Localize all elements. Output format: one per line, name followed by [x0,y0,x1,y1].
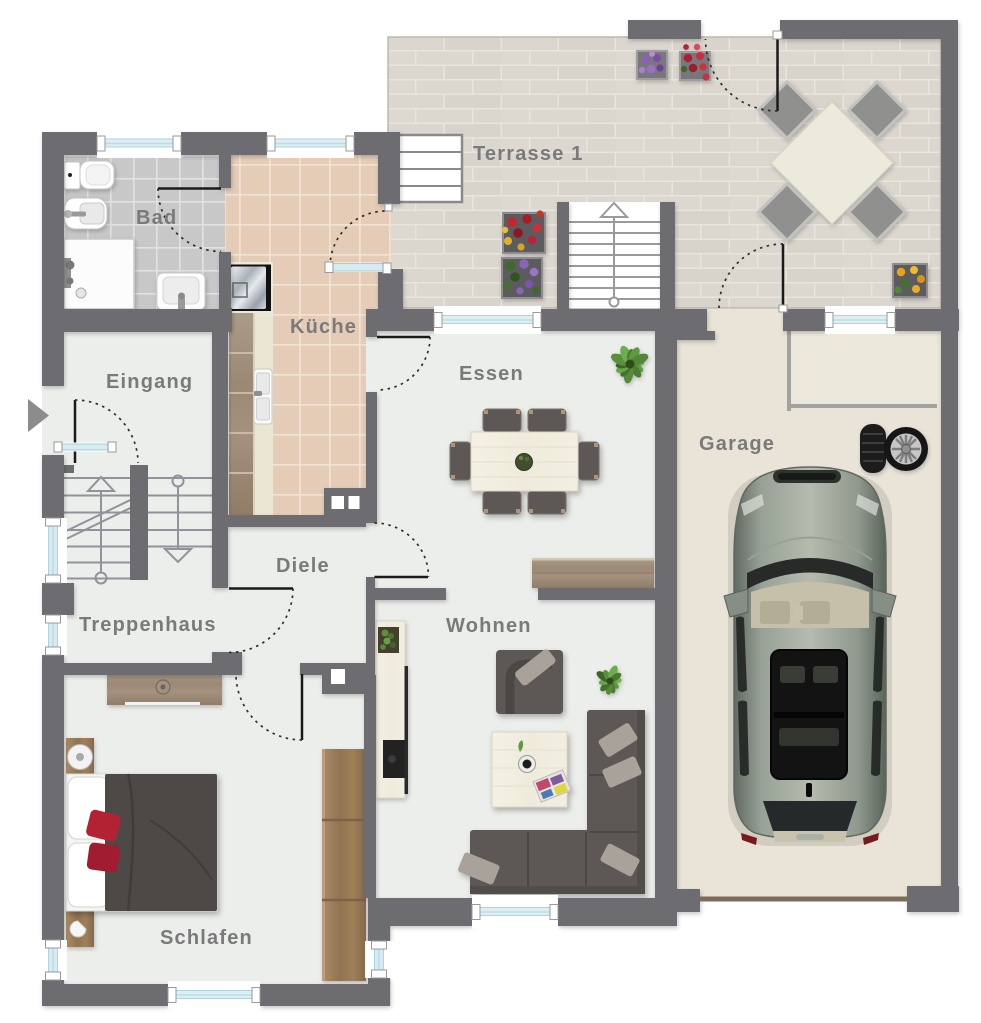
svg-text:Wohnen: Wohnen [446,615,532,637]
svg-text:Garage: Garage [699,433,775,455]
svg-text:Küche: Küche [290,316,357,338]
svg-text:Eingang: Eingang [106,371,193,393]
svg-text:Essen: Essen [459,363,524,385]
svg-text:Treppenhaus: Treppenhaus [79,614,217,636]
svg-text:Schlafen: Schlafen [160,927,253,949]
svg-text:Terrasse 1: Terrasse 1 [473,143,584,165]
svg-text:Bad: Bad [136,207,177,229]
svg-text:Diele: Diele [276,555,330,577]
